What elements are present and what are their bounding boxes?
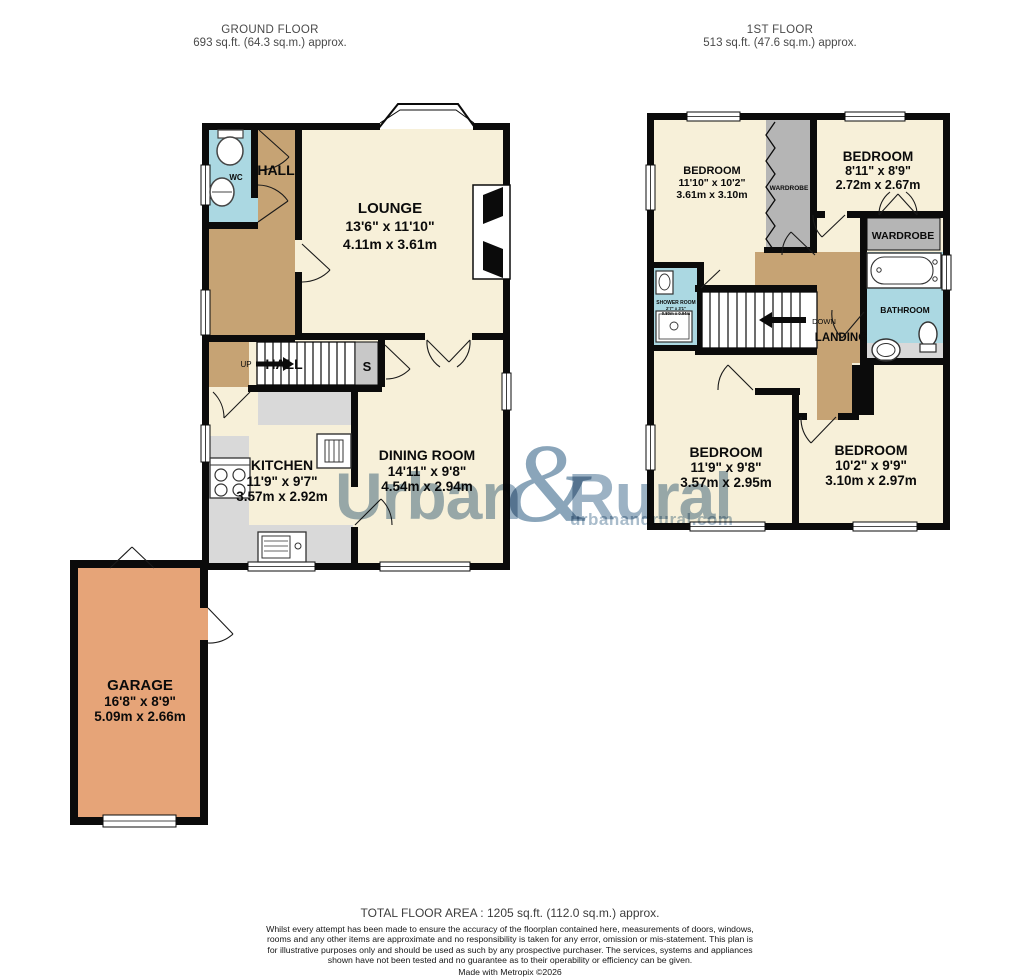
- kitchen-sink-icon: [258, 532, 306, 562]
- kitchen-metric: 3.57m x 2.92m: [236, 489, 328, 504]
- stairs-first: [702, 292, 817, 348]
- store-label: S: [363, 359, 372, 374]
- bedroom4-metric: 3.10m x 2.97m: [825, 473, 917, 488]
- lounge-metric: 4.11m x 3.61m: [343, 236, 437, 252]
- kitchen-imperial: 11'9" x 9'7": [246, 474, 317, 489]
- bedroom3-metric: 3.57m x 2.95m: [680, 475, 772, 490]
- garage-door: [103, 815, 176, 827]
- dining-imperial: 14'11" x 9'8": [388, 464, 467, 479]
- bedroom1-name: BEDROOM: [683, 165, 740, 177]
- toilet-icon: [217, 130, 243, 165]
- hall-label: HALL: [257, 162, 295, 178]
- wardrobe-left-label: WARDROBE: [770, 185, 809, 192]
- garage-plan: GARAGE 16'8" x 8'9" 5.09m x 2.66m: [70, 547, 233, 827]
- garage-metric: 5.09m x 2.66m: [94, 709, 186, 724]
- basin-icon: [210, 178, 234, 206]
- kitchen-name: KITCHEN: [251, 457, 313, 473]
- landing-floor-a: [755, 252, 817, 285]
- landing-floor-c: [817, 363, 852, 420]
- bedroom2-metric: 2.72m x 2.67m: [836, 178, 921, 192]
- dining-metric: 4.54m x 2.94m: [381, 479, 473, 494]
- kitchen-counter-top: [258, 392, 352, 425]
- bedroom3-name: BEDROOM: [689, 444, 762, 460]
- down-label: DOWN: [812, 317, 836, 326]
- landing-floor-b: [817, 252, 867, 363]
- bedroom4-name: BEDROOM: [834, 442, 907, 458]
- lounge-name: LOUNGE: [358, 200, 422, 217]
- bay-window: [378, 104, 476, 129]
- footer: TOTAL FLOOR AREA : 1205 sq.ft. (112.0 sq…: [0, 906, 1020, 977]
- bathroom-label: BATHROOM: [880, 305, 929, 315]
- bedroom1-metric: 3.61m x 3.10m: [676, 189, 747, 201]
- hall-stairs-label: HALL: [265, 356, 303, 372]
- wc-label: WC: [229, 173, 243, 182]
- bedroom1-imperial: 11'10" x 10'2": [679, 177, 746, 189]
- chimney-breast: [473, 185, 510, 279]
- radiator-icon: [317, 434, 351, 468]
- pedestal-sink-icon: [872, 339, 900, 361]
- bedroom4-imperial: 10'2" x 9'9": [835, 458, 907, 473]
- basin-icon: [656, 271, 673, 294]
- toilet-icon: [919, 322, 937, 352]
- bedroom2-name: BEDROOM: [843, 149, 914, 164]
- bedroom3-imperial: 11'9" x 9'8": [690, 460, 761, 475]
- landing-label: LANDING: [815, 332, 867, 344]
- garage-imperial: 16'8" x 8'9": [104, 694, 176, 709]
- floorplan-svg: HALL WC LOUNGE 13'6" x 11'10" 4.11m x 3.…: [0, 0, 1020, 978]
- first-floor-plan: BEDROOM 11'10" x 10'2" 3.61m x 3.10m BED…: [646, 112, 951, 531]
- up-label: UP: [240, 360, 251, 369]
- ground-floor-plan: HALL WC LOUNGE 13'6" x 11'10" 4.11m x 3.…: [201, 104, 511, 571]
- dining-name: DINING ROOM: [379, 447, 475, 463]
- credit-text: Made with Metropix ©2026: [0, 967, 1020, 977]
- disclaimer-text: Whilst every attempt has been made to en…: [264, 924, 756, 966]
- wardrobe-right-label: WARDROBE: [872, 230, 934, 242]
- lounge-imperial: 13'6" x 11'10": [345, 218, 434, 234]
- shower-metric: 0.80m x 0.94m: [662, 311, 691, 316]
- total-floor-area: TOTAL FLOOR AREA : 1205 sq.ft. (112.0 sq…: [0, 906, 1020, 920]
- garage-name: GARAGE: [107, 677, 173, 694]
- bathtub-icon: [867, 253, 941, 288]
- bedroom2-imperial: 8'11" x 8'9": [845, 164, 911, 178]
